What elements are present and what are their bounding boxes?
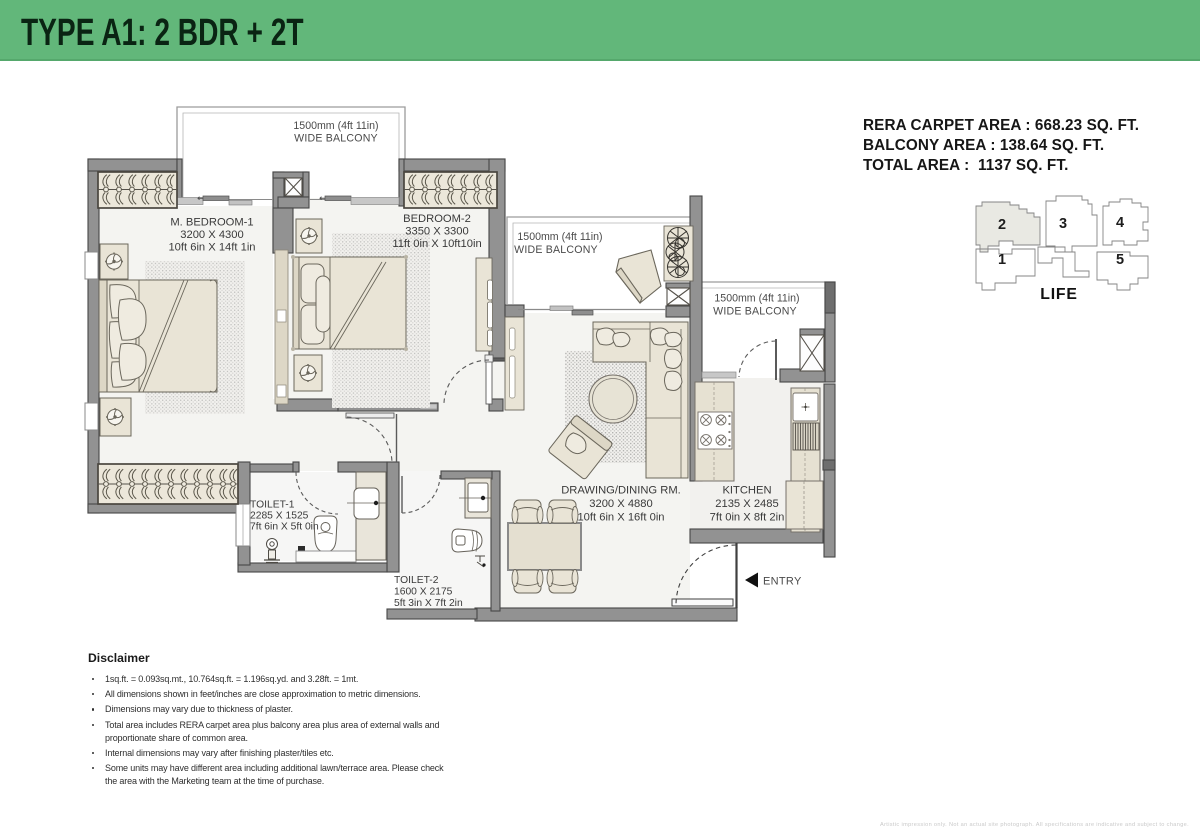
svg-text:LIFE: LIFE bbox=[1040, 286, 1077, 303]
svg-text:7ft 0in X 8ft 2in: 7ft 0in X 8ft 2in bbox=[710, 512, 785, 524]
svg-text:11ft 0in X 10ft10in: 11ft 0in X 10ft10in bbox=[392, 238, 481, 250]
svg-text:BEDROOM-2: BEDROOM-2 bbox=[403, 213, 471, 225]
svg-text:10ft 6in X 16ft 0in: 10ft 6in X 16ft 0in bbox=[577, 512, 664, 524]
svg-text:2285 X 1525: 2285 X 1525 bbox=[250, 511, 309, 522]
svg-text:5ft 3in X 7ft 2in: 5ft 3in X 7ft 2in bbox=[394, 598, 463, 609]
svg-text:4: 4 bbox=[1116, 215, 1124, 231]
svg-text:1500mm (4ft 11in): 1500mm (4ft 11in) bbox=[293, 120, 378, 132]
svg-text:TOILET-2: TOILET-2 bbox=[394, 575, 439, 586]
svg-text:M. BEDROOM-1: M. BEDROOM-1 bbox=[170, 217, 253, 229]
svg-text:2135 X 2485: 2135 X 2485 bbox=[715, 498, 778, 510]
svg-text:ENTRY: ENTRY bbox=[763, 576, 802, 588]
svg-text:TOILET-1: TOILET-1 bbox=[250, 500, 295, 511]
svg-text:WIDE BALCONY: WIDE BALCONY bbox=[713, 306, 797, 318]
svg-text:WIDE BALCONY: WIDE BALCONY bbox=[514, 244, 598, 256]
svg-text:3: 3 bbox=[1059, 216, 1067, 232]
svg-text:10ft 6in X 14ft 1in: 10ft 6in X 14ft 1in bbox=[168, 242, 255, 254]
svg-text:WIDE BALCONY: WIDE BALCONY bbox=[294, 133, 378, 145]
svg-text:3200 X 4300: 3200 X 4300 bbox=[180, 229, 243, 241]
svg-text:2: 2 bbox=[998, 217, 1006, 233]
svg-text:1500mm (4ft 11in): 1500mm (4ft 11in) bbox=[517, 231, 602, 243]
svg-text:KITCHEN: KITCHEN bbox=[722, 485, 771, 497]
svg-text:1500mm (4ft 11in): 1500mm (4ft 11in) bbox=[714, 293, 799, 305]
svg-text:1600 X 2175: 1600 X 2175 bbox=[394, 587, 453, 598]
svg-text:7ft 6in X 5ft 0in: 7ft 6in X 5ft 0in bbox=[250, 522, 319, 533]
svg-text:3350 X 3300: 3350 X 3300 bbox=[405, 226, 468, 238]
svg-text:1: 1 bbox=[998, 252, 1006, 268]
svg-text:5: 5 bbox=[1116, 252, 1124, 268]
svg-text:DRAWING/DINING RM.: DRAWING/DINING RM. bbox=[561, 485, 681, 497]
svg-text:3200 X 4880: 3200 X 4880 bbox=[589, 498, 652, 510]
